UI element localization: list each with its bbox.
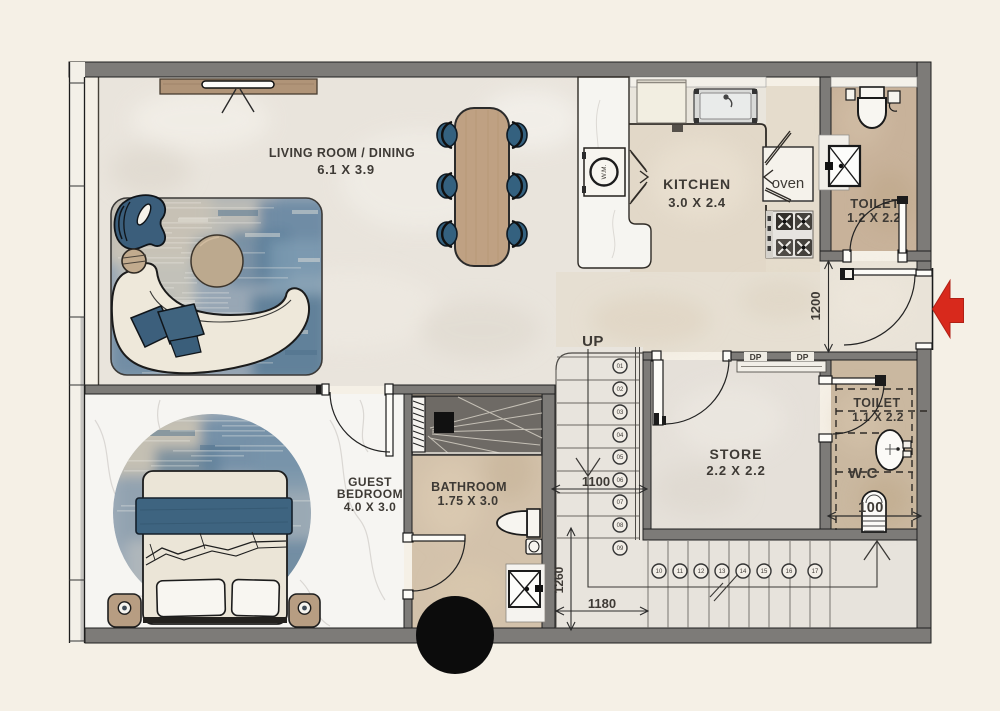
svg-text:1.75 X 3.0: 1.75 X 3.0: [438, 494, 499, 508]
svg-text:1.1 X 2.2: 1.1 X 2.2: [852, 410, 904, 424]
svg-text:11: 11: [677, 569, 684, 575]
svg-text:W.M.: W.M.: [601, 164, 608, 179]
svg-text:3.0 X 2.4: 3.0 X 2.4: [668, 195, 726, 210]
svg-text:16: 16: [786, 569, 793, 575]
svg-text:KITCHEN: KITCHEN: [663, 176, 731, 192]
svg-text:09: 09: [617, 546, 624, 552]
svg-text:04: 04: [617, 433, 624, 439]
svg-text:2.2 X 2.2: 2.2 X 2.2: [706, 463, 765, 478]
svg-text:1260: 1260: [552, 566, 566, 593]
svg-text:02: 02: [617, 387, 624, 393]
svg-text:W.C: W.C: [848, 465, 878, 482]
svg-text:BATHROOM: BATHROOM: [431, 480, 507, 494]
svg-text:DP: DP: [797, 352, 809, 362]
svg-text:01: 01: [617, 364, 624, 370]
svg-text:UP: UP: [582, 333, 604, 350]
svg-text:14: 14: [740, 569, 747, 575]
svg-text:06: 06: [617, 478, 624, 484]
svg-text:15: 15: [761, 569, 768, 575]
svg-text:DP: DP: [750, 352, 762, 362]
svg-text:17: 17: [812, 569, 819, 575]
svg-text:10: 10: [656, 569, 663, 575]
svg-text:LIVING ROOM / DINING: LIVING ROOM / DINING: [269, 146, 415, 160]
svg-text:1200: 1200: [808, 292, 823, 321]
svg-text:1180: 1180: [588, 596, 616, 611]
svg-text:TOILET: TOILET: [850, 196, 900, 211]
svg-text:08: 08: [617, 523, 624, 529]
svg-text:12: 12: [698, 569, 705, 575]
svg-text:07: 07: [617, 500, 624, 506]
svg-text:oven: oven: [772, 175, 805, 192]
svg-text:13: 13: [719, 569, 726, 575]
svg-text:05: 05: [617, 455, 624, 461]
svg-text:1.2 X 2.2: 1.2 X 2.2: [847, 211, 901, 225]
svg-text:4.0 X 3.0: 4.0 X 3.0: [344, 500, 397, 514]
svg-text:STORE: STORE: [710, 446, 763, 462]
svg-text:1100: 1100: [582, 474, 610, 489]
svg-text:03: 03: [617, 410, 624, 416]
svg-text:100: 100: [858, 500, 884, 516]
svg-text:BEDROOM: BEDROOM: [337, 487, 403, 501]
svg-text:6.1 X 3.9: 6.1 X 3.9: [317, 162, 374, 177]
